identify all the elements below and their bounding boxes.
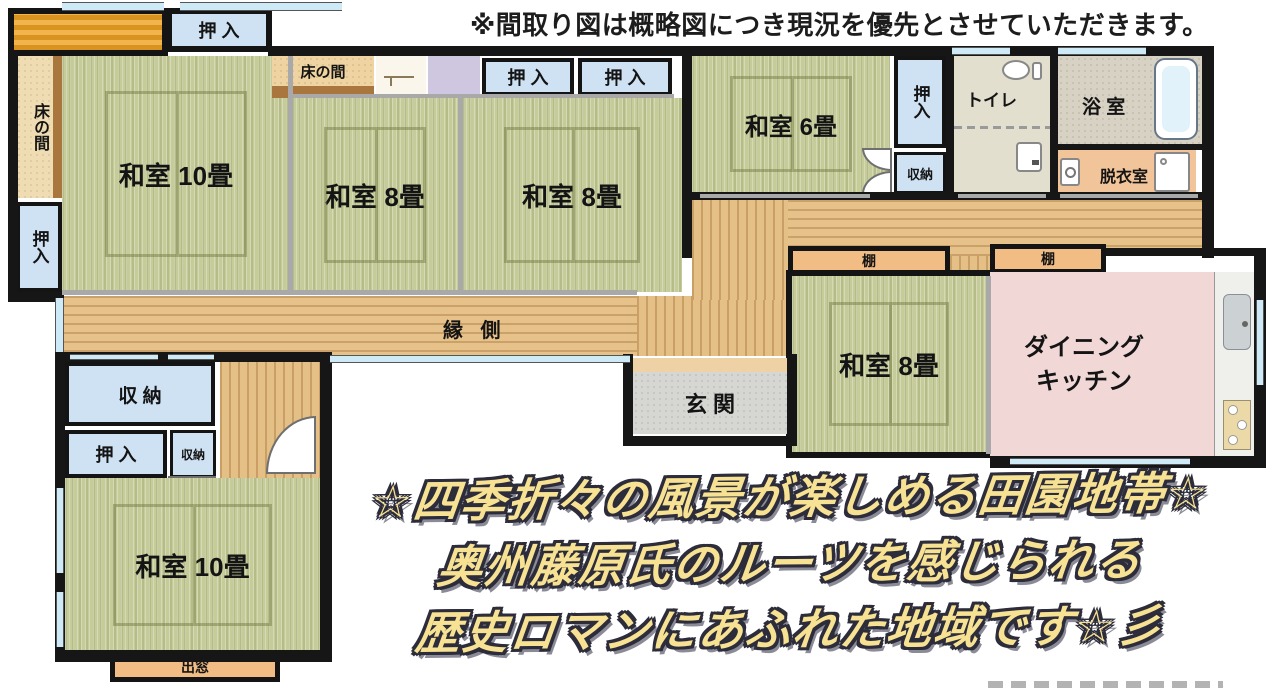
stove-icon <box>1223 400 1251 450</box>
room-washitsu-10-south: 和室 10畳 <box>65 478 320 652</box>
closet-label: 押入 <box>27 230 52 264</box>
bathtub-inner <box>1162 66 1190 132</box>
window <box>168 354 214 360</box>
tagline-line3: 歴史ロマンにあふれた地域です☆彡 <box>326 595 1254 665</box>
bathtub-icon <box>1154 58 1198 140</box>
wall <box>787 354 797 444</box>
wall <box>268 46 692 56</box>
wall <box>1106 248 1266 256</box>
shelf-tana-b: 棚 <box>990 244 1106 274</box>
bath-label: 浴 室 <box>1082 92 1125 119</box>
hall-connector-floor <box>637 296 790 356</box>
burner <box>1228 405 1238 415</box>
room-label: 和室 8畳 <box>325 177 425 214</box>
tokonoma-left: 床の間 <box>16 56 62 198</box>
window <box>55 298 64 352</box>
engawa-label: 縁 側 <box>443 314 507 343</box>
tagline-line2: 奥州藤原氏のルーツを感じられる <box>326 529 1254 599</box>
tokonoma-mid-label: 床の間 <box>300 61 345 82</box>
toilet-divider <box>954 126 1050 129</box>
sliding-door <box>62 290 637 295</box>
wall <box>623 354 633 444</box>
disclaimer-text: ※間取り図は概略図につき現況を優先とさせていただきます。 <box>470 5 1209 42</box>
datsui-room: 脱衣室 <box>1058 150 1196 194</box>
burner <box>1228 435 1238 445</box>
toilet-icon <box>1002 60 1030 80</box>
closet-label: 収 納 <box>118 381 161 408</box>
closet-label: 押 入 <box>507 64 548 90</box>
room-washitsu-6: 和室 6畳 <box>692 56 890 192</box>
wall <box>682 46 692 258</box>
lavender-nook <box>428 56 480 98</box>
closet-label: 押 入 <box>95 441 136 467</box>
sliding-door <box>288 56 293 290</box>
hall-corridor-left <box>692 200 788 256</box>
toilet-label: トイレ <box>966 86 1017 111</box>
window <box>70 354 158 360</box>
window <box>1058 47 1146 55</box>
sliding-door <box>700 194 870 198</box>
sliding-door <box>958 194 1046 198</box>
wall <box>1202 46 1214 258</box>
closet-oshiire-a: 押 入 <box>482 58 574 96</box>
sliding-door <box>986 276 991 454</box>
closet-label: 収納 <box>907 164 933 183</box>
wall <box>623 436 797 446</box>
closet-shunou-bl-small: 収納 <box>170 430 216 478</box>
room-label: 和室 8畳 <box>522 177 622 214</box>
dk-label-line1: ダイニング <box>1024 331 1144 365</box>
dk-label-line2: キッチン <box>1036 365 1132 399</box>
tokonoma-wood-strip <box>53 56 62 198</box>
cutoff-text-fragment <box>988 681 1223 688</box>
window <box>62 2 164 11</box>
basin-bowl <box>1065 167 1076 178</box>
room-label: 和室 8畳 <box>839 346 939 383</box>
window <box>952 47 1010 55</box>
stairs-icon <box>384 76 414 78</box>
window <box>56 488 64 573</box>
sliding-door <box>458 98 463 290</box>
washer-dial <box>1160 158 1167 165</box>
wall <box>8 50 18 300</box>
bath-room: 浴 室 <box>1058 56 1204 144</box>
sliding-door <box>292 94 674 98</box>
washing-machine-icon <box>1154 152 1190 192</box>
burner <box>1237 420 1247 430</box>
shelf-label: 棚 <box>862 251 876 271</box>
closet-label: 押 入 <box>604 64 645 90</box>
closet-oshiire-left: 押入 <box>16 202 62 292</box>
sliding-door <box>1060 194 1198 198</box>
kitchen-counter <box>1214 272 1256 458</box>
closet-shunou-bl: 収 納 <box>65 362 215 426</box>
tagline-line1: ☆四季折々の風景が楽しめる田園地帯☆ <box>326 463 1254 533</box>
tokonoma-left-label: 床の間 <box>27 103 51 151</box>
room-dining-kitchen: ダイニング キッチン <box>990 272 1214 458</box>
toilet-room: トイレ <box>954 56 1050 194</box>
genkan-step <box>633 358 787 372</box>
wall <box>1058 144 1204 150</box>
faucet <box>1242 321 1248 327</box>
washbasin-icon <box>1060 158 1080 186</box>
engawa-floor <box>62 296 637 356</box>
genkan-label: 玄 関 <box>685 387 735 419</box>
genkan-floor: 玄 関 <box>633 372 787 434</box>
closet-shunou-right: 収納 <box>894 152 946 194</box>
closet-oshiire-right: 押入 <box>894 56 946 148</box>
wall <box>55 650 332 662</box>
shelf-label: 棚 <box>1041 249 1055 269</box>
closet-oshiire-b: 押 入 <box>578 58 672 96</box>
closet-oshiire-top: 押 入 <box>166 8 272 52</box>
closet-label: 押 入 <box>198 17 239 43</box>
window <box>330 355 630 363</box>
closet-label: 収納 <box>181 446 205 463</box>
wall <box>946 50 954 196</box>
floor-plan: ※間取り図は概略図につき現況を優先とさせていただきます。 縁 側 押 入 床の間… <box>0 0 1280 691</box>
room-label: 和室 10畳 <box>119 156 233 193</box>
window <box>1256 300 1264 385</box>
room-washitsu-8-east: 和室 8畳 <box>462 98 682 292</box>
room-washitsu-8-south: 和室 8畳 <box>786 270 992 458</box>
room-washitsu-8-west: 和室 8畳 <box>292 98 458 292</box>
stair-nook <box>376 56 426 98</box>
room-label: 和室 6畳 <box>745 107 837 142</box>
washbasin-icon <box>1016 142 1042 172</box>
closet-label: 押入 <box>908 85 933 119</box>
porch-steps <box>8 8 168 56</box>
datsui-label: 脱衣室 <box>1100 163 1148 187</box>
room-label: 和室 10畳 <box>135 547 249 584</box>
closet-oshiire-bl: 押 入 <box>65 430 167 478</box>
kitchen-sink-icon <box>1223 294 1251 350</box>
window <box>56 592 64 647</box>
stairs-icon <box>390 76 392 86</box>
wall <box>1050 50 1058 196</box>
window <box>180 2 342 11</box>
washbasin-drain <box>1032 160 1039 165</box>
toilet-icon <box>1032 62 1042 80</box>
room-washitsu-10-north: 和室 10畳 <box>62 56 290 292</box>
